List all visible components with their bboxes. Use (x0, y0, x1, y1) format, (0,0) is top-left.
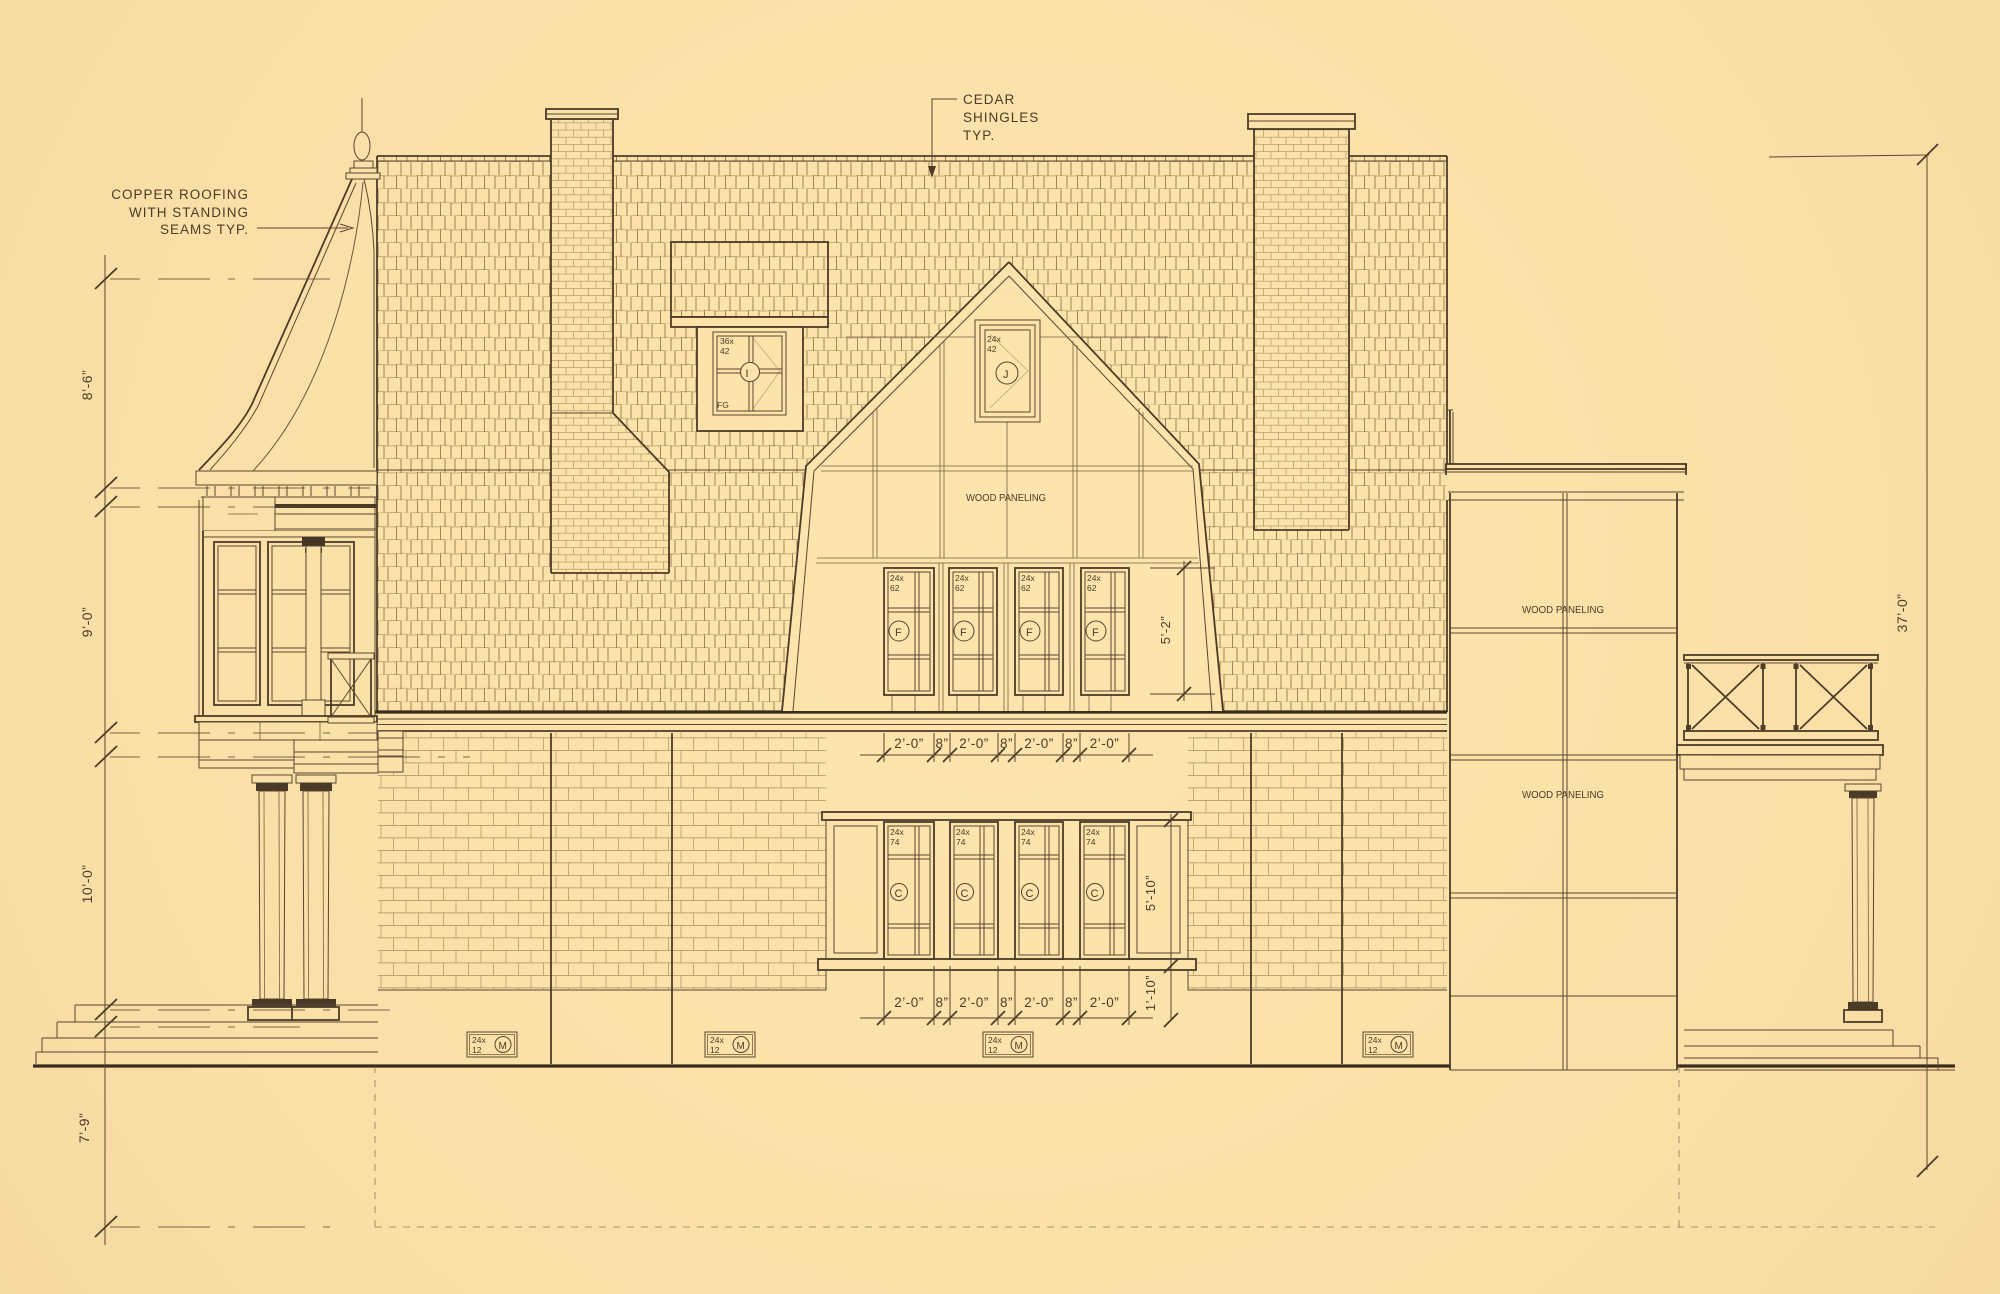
svg-text:M: M (1015, 1041, 1023, 1052)
svg-text:SEAMS TYP.: SEAMS TYP. (160, 222, 249, 237)
svg-text:CEDAR: CEDAR (963, 92, 1015, 107)
svg-text:24x: 24x (1086, 827, 1100, 837)
svg-text:24x: 24x (1021, 827, 1035, 837)
svg-text:8”: 8” (1065, 995, 1078, 1010)
svg-text:WOOD PANELING: WOOD PANELING (966, 492, 1046, 504)
svg-text:74: 74 (1086, 837, 1096, 847)
svg-text:24x: 24x (988, 1035, 1002, 1045)
svg-text:F: F (895, 627, 902, 639)
svg-text:24x: 24x (710, 1035, 724, 1045)
svg-text:M: M (1395, 1041, 1403, 1052)
svg-text:24x: 24x (956, 827, 970, 837)
svg-text:7’-9”: 7’-9” (76, 1113, 92, 1144)
svg-text:M: M (737, 1041, 745, 1052)
svg-text:62: 62 (1087, 583, 1097, 593)
svg-text:24x: 24x (955, 573, 969, 583)
svg-text:TYP.: TYP. (963, 128, 995, 143)
svg-text:C: C (1026, 888, 1034, 900)
svg-text:2’-0”: 2’-0” (1024, 736, 1054, 751)
svg-text:62: 62 (1021, 583, 1031, 593)
svg-text:8’-6”: 8’-6” (79, 370, 95, 401)
svg-text:24x: 24x (1021, 573, 1035, 583)
svg-text:J: J (1003, 369, 1009, 381)
svg-text:74: 74 (1021, 837, 1031, 847)
svg-text:C: C (961, 888, 969, 900)
svg-text:2’-0”: 2’-0” (894, 736, 924, 751)
svg-text:10’-0”: 10’-0” (79, 865, 95, 904)
svg-text:2’-0”: 2’-0” (959, 995, 989, 1010)
svg-text:WOOD PANELING: WOOD PANELING (1522, 790, 1604, 801)
svg-text:12: 12 (988, 1045, 998, 1055)
svg-text:24x: 24x (890, 827, 904, 837)
svg-text:24x: 24x (472, 1035, 486, 1045)
svg-text:8”: 8” (1000, 736, 1013, 751)
svg-text:FG: FG (717, 400, 729, 410)
svg-text:24x: 24x (987, 334, 1001, 344)
svg-text:WOOD PANELING: WOOD PANELING (1522, 605, 1604, 616)
svg-text:8”: 8” (1000, 995, 1013, 1010)
svg-text:COPPER ROOFING: COPPER ROOFING (111, 187, 249, 202)
svg-text:F: F (960, 627, 967, 639)
svg-text:5’-10”: 5’-10” (1143, 875, 1158, 911)
svg-text:2’-0”: 2’-0” (1024, 995, 1054, 1010)
svg-text:2’-0”: 2’-0” (1090, 995, 1120, 1010)
svg-text:WITH STANDING: WITH STANDING (129, 205, 249, 220)
svg-text:42: 42 (987, 344, 997, 354)
svg-text:36x: 36x (720, 336, 734, 346)
svg-text:2’-0”: 2’-0” (894, 995, 924, 1010)
svg-text:24x: 24x (890, 573, 904, 583)
svg-text:12: 12 (710, 1045, 720, 1055)
svg-text:37’-0”: 37’-0” (1894, 594, 1910, 633)
svg-text:F: F (1026, 627, 1033, 639)
svg-text:5’-2”: 5’-2” (1158, 616, 1173, 645)
svg-text:SHINGLES: SHINGLES (963, 110, 1039, 125)
svg-text:C: C (1091, 888, 1099, 900)
svg-text:74: 74 (890, 837, 900, 847)
svg-text:8”: 8” (935, 995, 948, 1010)
svg-text:I: I (746, 368, 749, 380)
svg-text:F: F (1092, 627, 1099, 639)
svg-text:62: 62 (890, 583, 900, 593)
svg-text:12: 12 (472, 1045, 482, 1055)
svg-text:C: C (895, 888, 903, 900)
svg-text:12: 12 (1368, 1045, 1378, 1055)
svg-text:42: 42 (720, 346, 730, 356)
svg-text:74: 74 (956, 837, 966, 847)
svg-text:9’-0”: 9’-0” (79, 607, 95, 638)
svg-text:8”: 8” (1065, 736, 1078, 751)
svg-text:62: 62 (955, 583, 965, 593)
svg-text:M: M (499, 1041, 507, 1052)
svg-text:1’-10”: 1’-10” (1143, 975, 1158, 1011)
svg-text:24x: 24x (1087, 573, 1101, 583)
svg-text:2’-0”: 2’-0” (959, 736, 989, 751)
svg-text:2’-0”: 2’-0” (1090, 736, 1120, 751)
svg-text:8”: 8” (935, 736, 948, 751)
svg-text:24x: 24x (1368, 1035, 1382, 1045)
